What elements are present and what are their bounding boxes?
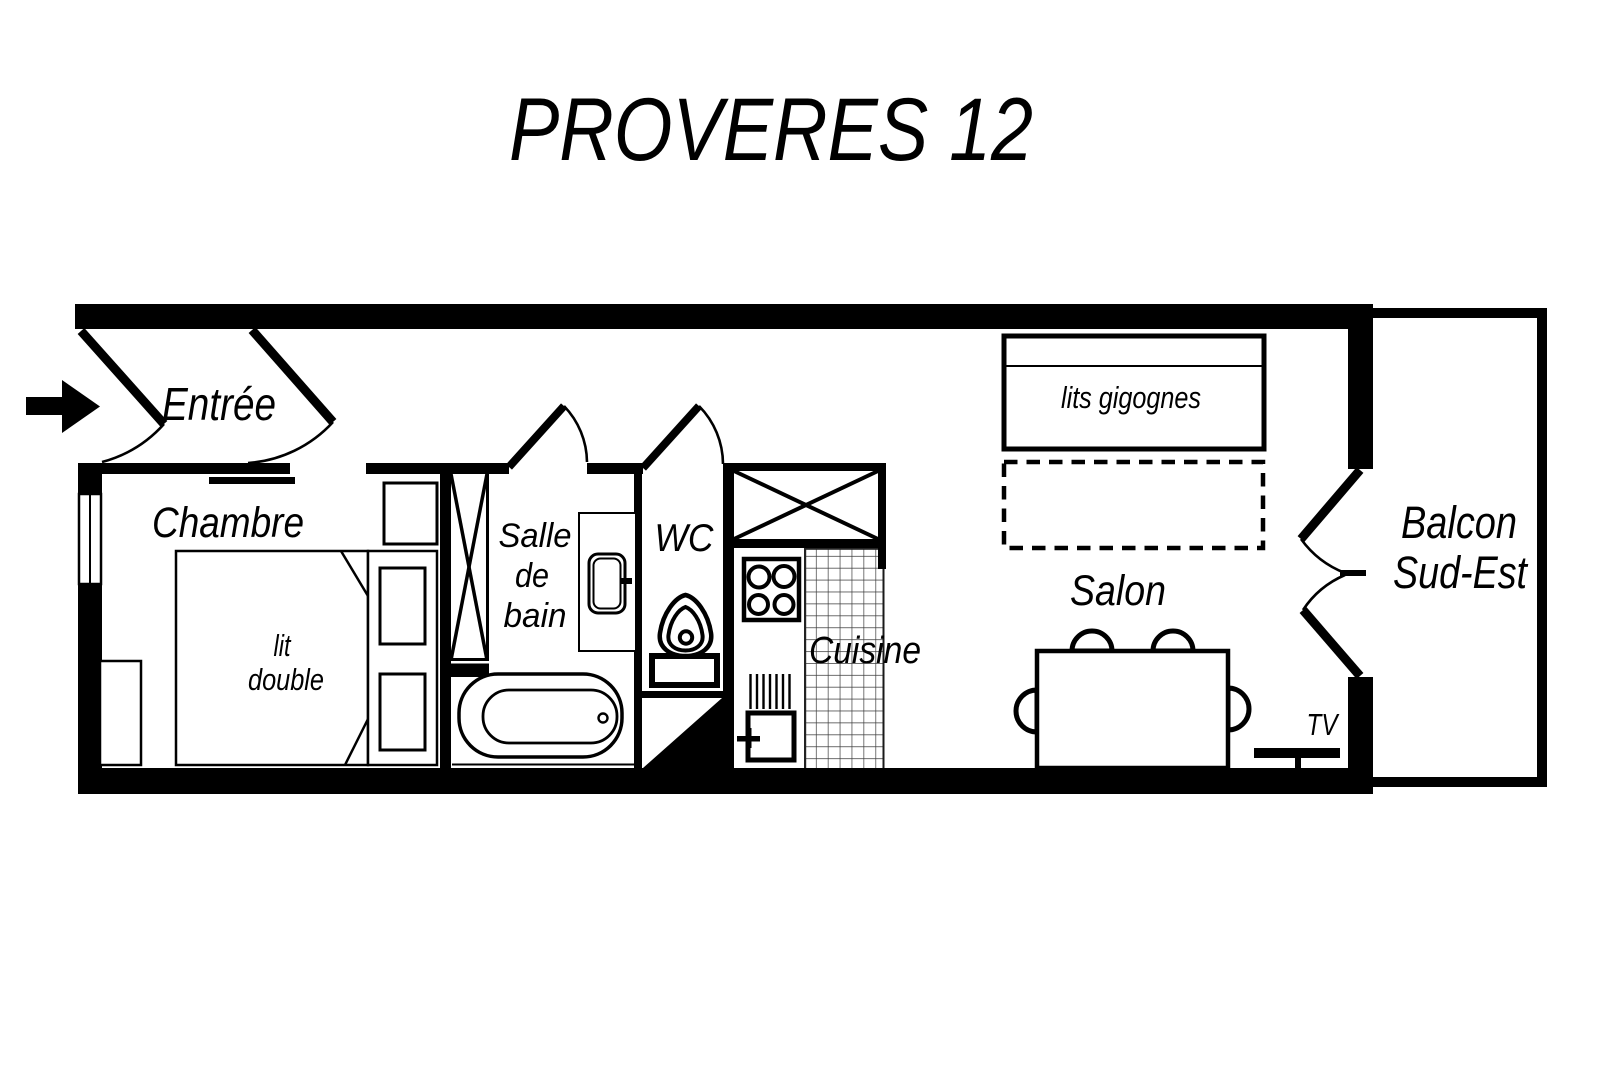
svg-text:bain: bain xyxy=(504,597,567,635)
svg-text:Entrée: Entrée xyxy=(162,378,276,430)
svg-text:WC: WC xyxy=(655,517,715,560)
svg-text:lits gigognes: lits gigognes xyxy=(1061,380,1201,415)
svg-text:Sud-Est: Sud-Est xyxy=(1393,547,1529,598)
svg-text:PROVERES 12: PROVERES 12 xyxy=(509,79,1033,179)
svg-text:TV: TV xyxy=(1307,707,1341,742)
svg-text:Salle: Salle xyxy=(499,517,572,555)
svg-text:de: de xyxy=(515,557,549,595)
svg-text:Chambre: Chambre xyxy=(152,499,304,547)
svg-text:Salon: Salon xyxy=(1070,567,1166,615)
svg-text:lit: lit xyxy=(274,628,292,663)
svg-text:Cuisine: Cuisine xyxy=(809,630,921,672)
svg-text:Balcon: Balcon xyxy=(1401,497,1517,548)
svg-text:double: double xyxy=(248,662,324,697)
